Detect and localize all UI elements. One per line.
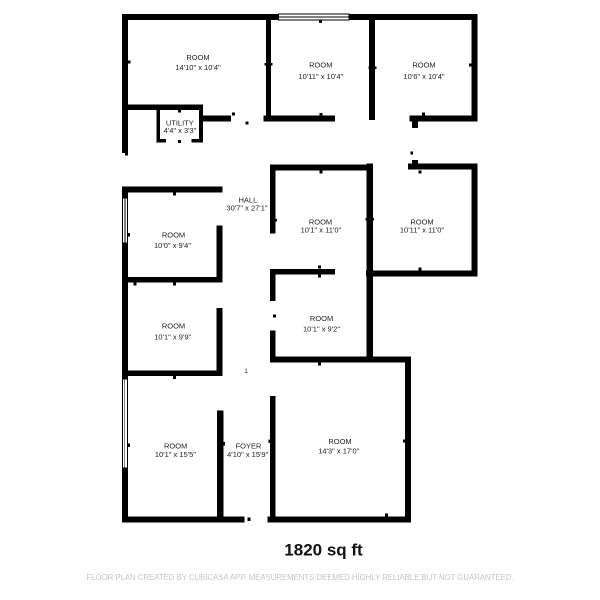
svg-text:ROOM: ROOM	[164, 442, 187, 451]
svg-text:30'7" x 27'1": 30'7" x 27'1"	[226, 204, 267, 213]
svg-text:ROOM: ROOM	[309, 61, 332, 70]
svg-text:10'0" x 9'4": 10'0" x 9'4"	[154, 241, 191, 250]
svg-text:ROOM: ROOM	[186, 53, 209, 62]
svg-text:14'10" x 10'4": 14'10" x 10'4"	[175, 63, 221, 72]
svg-text:10'6" x 10'4": 10'6" x 10'4"	[403, 72, 444, 81]
svg-text:10'1" x 9'9": 10'1" x 9'9"	[154, 333, 191, 342]
svg-text:ROOM: ROOM	[162, 322, 185, 331]
svg-text:10'1" x 11'0": 10'1" x 11'0"	[301, 226, 342, 235]
svg-text:10'11" x 11'0": 10'11" x 11'0"	[400, 226, 445, 235]
svg-text:14'3" x 17'0": 14'3" x 17'0"	[318, 447, 359, 456]
svg-text:4'4" x 3'3": 4'4" x 3'3"	[164, 126, 197, 135]
svg-text:ROOM: ROOM	[328, 437, 351, 446]
svg-text:10'1" x 15'5": 10'1" x 15'5"	[155, 450, 196, 459]
svg-text:ROOM: ROOM	[310, 314, 333, 323]
svg-text:FLOOR PLAN CREATED BY CUBICASA: FLOOR PLAN CREATED BY CUBICASA APP. MEAS…	[87, 573, 514, 582]
svg-text:ROOM: ROOM	[162, 231, 185, 240]
svg-text:4'10" x 15'9": 4'10" x 15'9"	[227, 450, 268, 459]
svg-text:1820 sq ft: 1820 sq ft	[284, 541, 363, 560]
svg-text:ROOM: ROOM	[412, 61, 435, 70]
svg-text:10'1" x 9'2": 10'1" x 9'2"	[303, 324, 340, 333]
svg-text:10'11" x 10'4": 10'11" x 10'4"	[298, 72, 343, 81]
svg-text:FOYER: FOYER	[236, 442, 262, 451]
